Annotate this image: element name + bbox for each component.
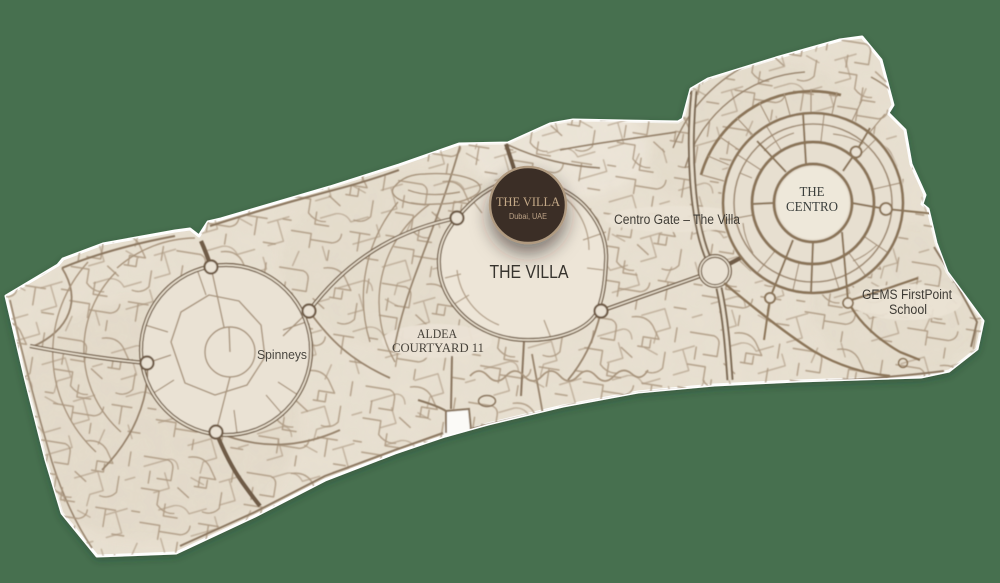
svg-text:THE VILLA: THE VILLA <box>490 261 570 282</box>
svg-text:THE VILLA: THE VILLA <box>496 195 560 209</box>
svg-text:Spinneys: Spinneys <box>257 347 307 362</box>
svg-text:Dubai, UAE: Dubai, UAE <box>509 212 547 221</box>
svg-text:THE: THE <box>800 184 825 199</box>
svg-text:GEMS FirstPoint: GEMS FirstPoint <box>862 287 952 302</box>
svg-text:Centro Gate – The Villa: Centro Gate – The Villa <box>614 212 740 227</box>
svg-text:School: School <box>889 302 927 317</box>
svg-text:CENTRO: CENTRO <box>786 199 838 214</box>
svg-text:COURTYARD 11: COURTYARD 11 <box>392 341 484 355</box>
svg-text:ALDEA: ALDEA <box>417 327 457 341</box>
